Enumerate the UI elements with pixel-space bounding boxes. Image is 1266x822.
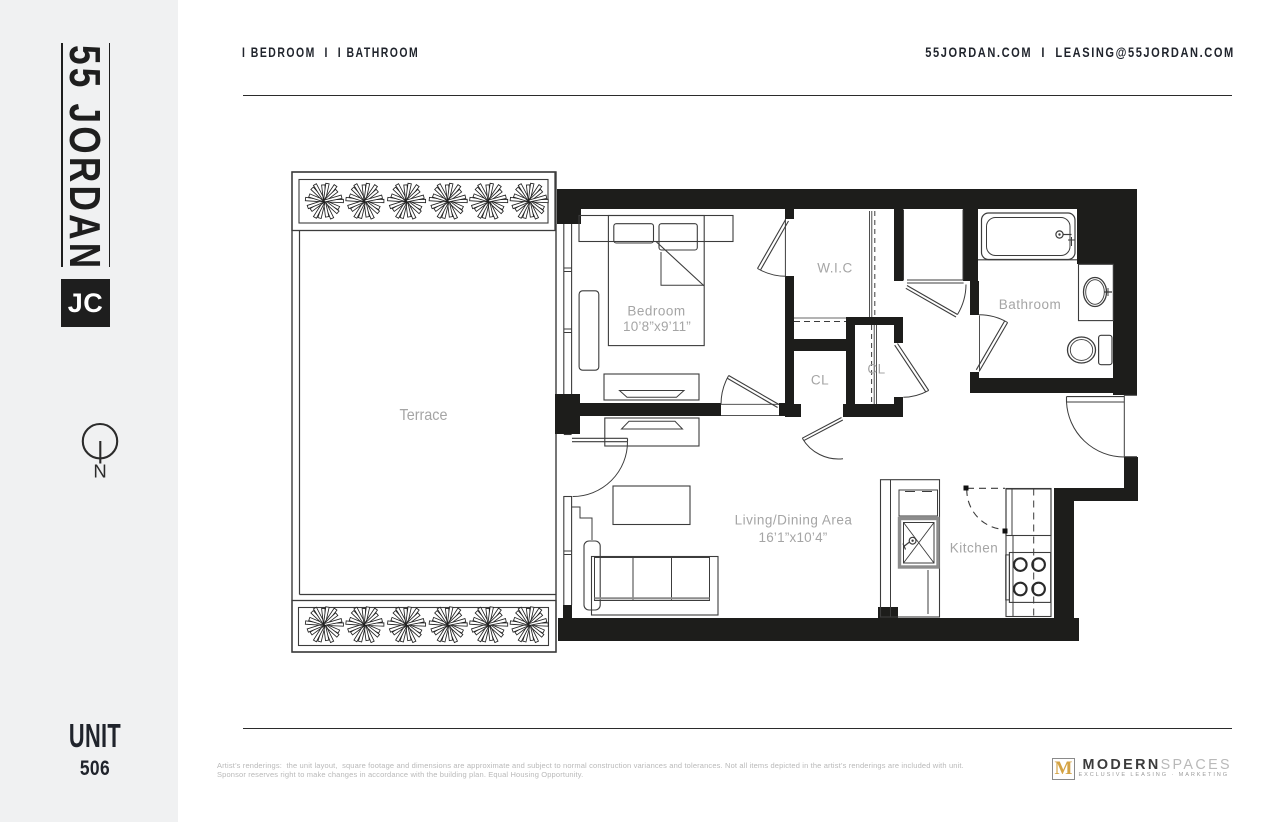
svg-text:Terrace: Terrace: [400, 407, 448, 424]
svg-text:Bathroom: Bathroom: [999, 297, 1062, 312]
svg-text:10’8”x9’11”: 10’8”x9’11”: [623, 319, 691, 334]
svg-text:W.I.C: W.I.C: [817, 261, 853, 276]
svg-text:Living/Dining Area: Living/Dining Area: [735, 513, 853, 528]
svg-text:CL: CL: [811, 373, 829, 388]
svg-text:Kitchen: Kitchen: [950, 541, 999, 556]
svg-text:Bedroom: Bedroom: [627, 304, 685, 319]
svg-text:16’1”x10’4”: 16’1”x10’4”: [759, 530, 828, 545]
svg-text:CL: CL: [867, 362, 885, 377]
